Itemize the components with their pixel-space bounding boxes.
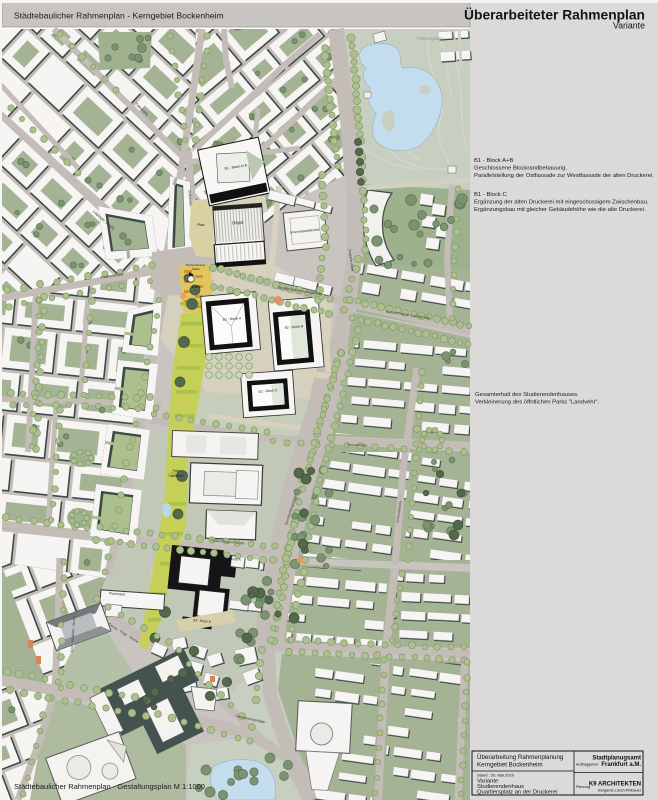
svg-text:Stand : 20. Mai 2010: Stand : 20. Mai 2010 xyxy=(477,773,515,778)
svg-text:Gesamterhalt des Studierendenh: Gesamterhalt des Studierendenhauses. xyxy=(475,392,579,398)
svg-text:"Landwehr": "Landwehr" xyxy=(168,474,184,478)
svg-text:Markt: Markt xyxy=(192,285,201,289)
svg-text:Frankfurt a.M.: Frankfurt a.M. xyxy=(601,762,641,768)
svg-text:K9 ARCHITEKTEN: K9 ARCHITEKTEN xyxy=(589,782,641,788)
svg-text:Ergänzung der alten Druckerei: Ergänzung der alten Druckerei mit einges… xyxy=(474,200,649,206)
svg-text:Parallelstellung der Ostfassad: Parallelstellung der Ostfassade zur West… xyxy=(474,173,654,179)
svg-text:Park: Park xyxy=(173,469,180,473)
svg-text:Geschlossene Blockrandbebauung: Geschlossene Blockrandbebauung. xyxy=(474,166,567,172)
svg-text:Variante: Variante xyxy=(613,21,645,31)
svg-text:Kerngebiet Bockenheim: Kerngebiet Bockenheim xyxy=(477,762,543,769)
svg-text:Depot: Depot xyxy=(232,220,244,226)
svg-text:Palmengarten: Palmengarten xyxy=(417,36,444,41)
svg-text:Überarbeitung Rahmenplanung: Überarbeitung Rahmenplanung xyxy=(477,754,564,761)
svg-text:Planung: Planung xyxy=(576,785,590,789)
svg-text:Verkleinerung des öffntlichen: Verkleinerung des öffntlichen Parks "Lan… xyxy=(475,400,600,406)
svg-text:Borgards.Lösch.Piribauer: Borgards.Lösch.Piribauer xyxy=(598,789,642,793)
svg-text:Ergänzungsbau mit gleicher Geb: Ergänzungsbau mit gleicher Gebäudehöhe w… xyxy=(474,207,646,213)
svg-text:Platz: Platz xyxy=(197,223,205,227)
svg-text:Warte: Warte xyxy=(192,267,200,271)
svg-text:B1 - Block C: B1 - Block C xyxy=(474,192,507,198)
svg-text:Cervusstraße: Cervusstraße xyxy=(347,443,368,448)
svg-text:Städtebaulicher Rahmenplan - K: Städtebaulicher Rahmenplan - Kerngebiet … xyxy=(14,11,224,21)
svg-text:Stadtplanugsamt: Stadtplanugsamt xyxy=(592,756,641,762)
svg-text:Quartiersplatz an der Druckere: Quartiersplatz an der Druckerei xyxy=(477,790,558,796)
svg-text:Städtebaulicher Rahmenplan - G: Städtebaulicher Rahmenplan - Gestaltungs… xyxy=(14,782,205,791)
svg-text:Auftraggeber:: Auftraggeber: xyxy=(576,763,599,767)
svg-text:B1 - Block A+B: B1 - Block A+B xyxy=(474,158,514,164)
